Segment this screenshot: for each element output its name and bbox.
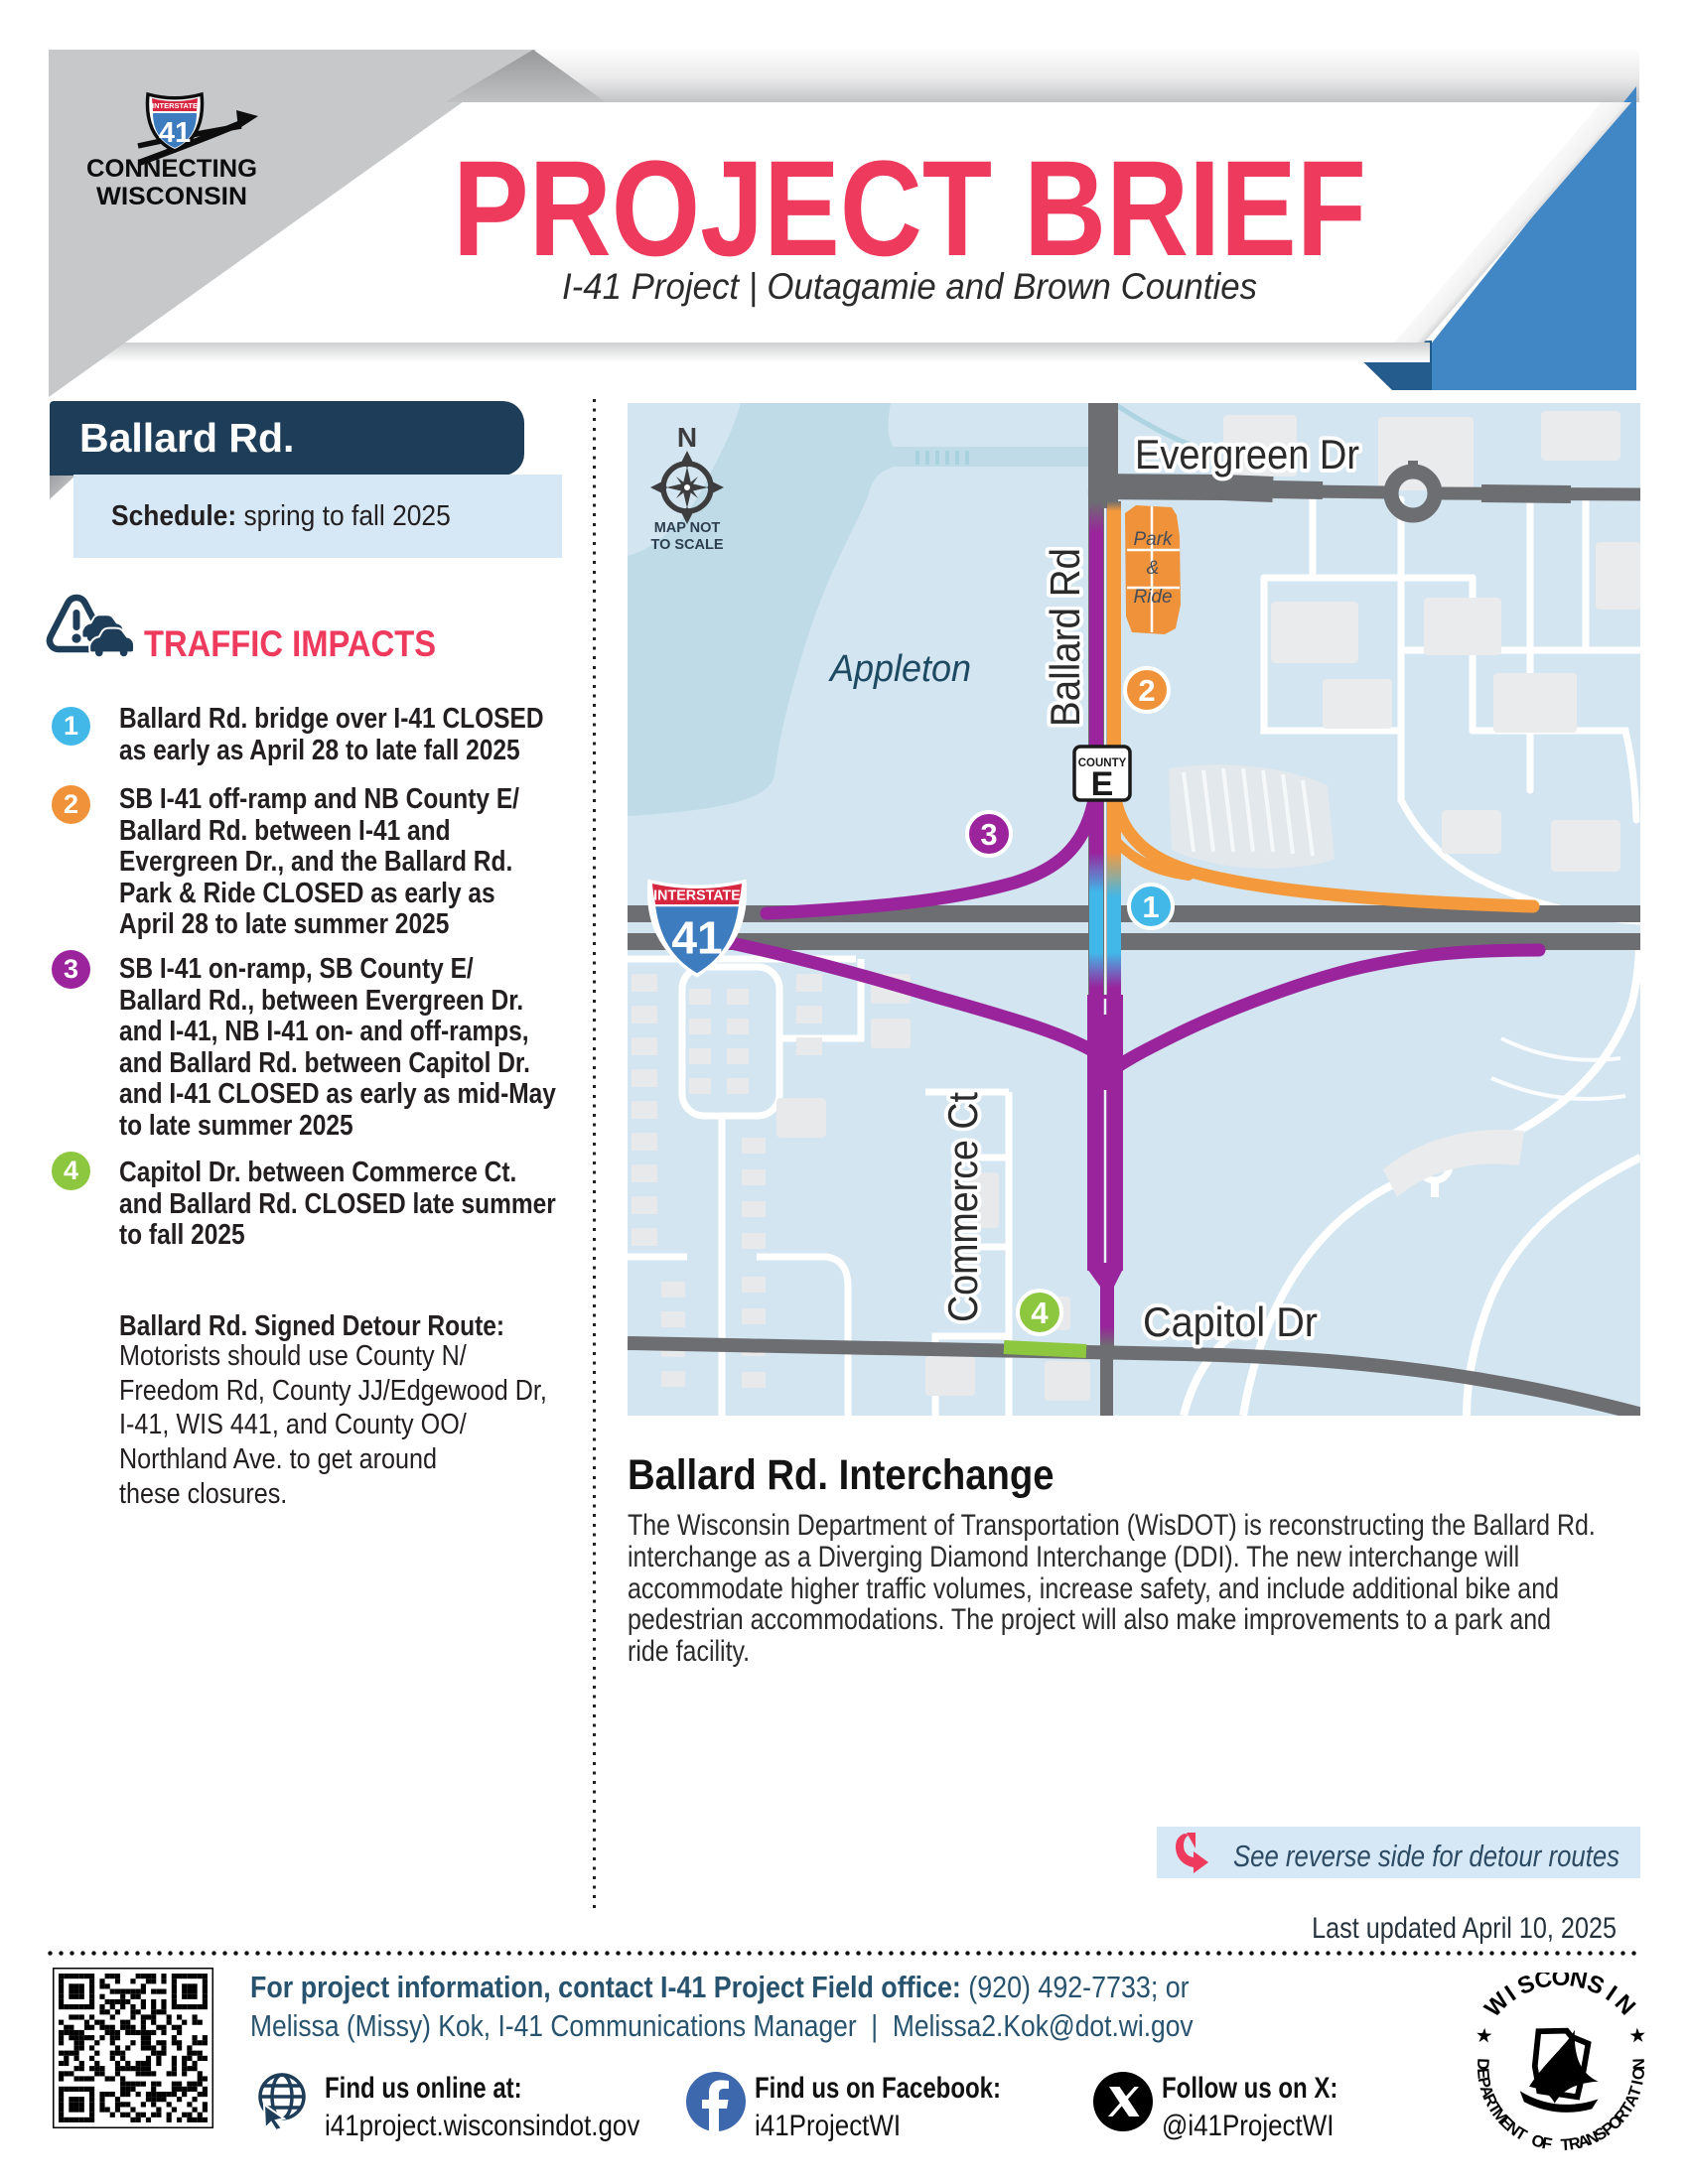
- svg-text:WISCONSIN: WISCONSIN: [96, 183, 247, 210]
- svg-text:E: E: [1091, 765, 1114, 803]
- svg-text:&: &: [1147, 558, 1160, 579]
- svg-text:Commerce Ct: Commerce Ct: [939, 1092, 986, 1322]
- svg-text:Appleton: Appleton: [828, 648, 971, 690]
- svg-text:N: N: [1630, 2058, 1648, 2071]
- svg-text:Evergreen Dr: Evergreen Dr: [1135, 431, 1359, 478]
- svg-text:2: 2: [1138, 673, 1155, 708]
- svg-text:N: N: [677, 422, 697, 453]
- svg-text:PROJECT BRIEF: PROJECT BRIEF: [453, 133, 1366, 285]
- svg-text:3: 3: [980, 817, 997, 852]
- svg-text:Ballard Rd: Ballard Rd: [1042, 548, 1088, 727]
- svg-text:INTERSTATE: INTERSTATE: [653, 888, 741, 904]
- svg-text:CONNECTING: CONNECTING: [86, 155, 257, 183]
- svg-text:★: ★: [1471, 2023, 1497, 2048]
- svg-text:Capitol Dr: Capitol Dr: [1143, 1298, 1318, 1345]
- svg-text:TO SCALE: TO SCALE: [650, 537, 723, 553]
- svg-text:4: 4: [1031, 1296, 1049, 1330]
- svg-text:Ride: Ride: [1133, 587, 1172, 608]
- svg-text:INTERSTATE: INTERSTATE: [152, 101, 198, 110]
- svg-text:41: 41: [159, 117, 191, 149]
- svg-text:MAP NOT: MAP NOT: [654, 520, 721, 536]
- svg-text:41: 41: [671, 912, 722, 964]
- svg-text:Park: Park: [1133, 529, 1174, 550]
- svg-text:F: F: [1540, 2134, 1553, 2154]
- svg-text:I-41 Project | Outagamie and B: I-41 Project | Outagamie and Brown Count…: [562, 266, 1257, 307]
- svg-text:1: 1: [1142, 889, 1159, 924]
- svg-text:★: ★: [1623, 2023, 1650, 2048]
